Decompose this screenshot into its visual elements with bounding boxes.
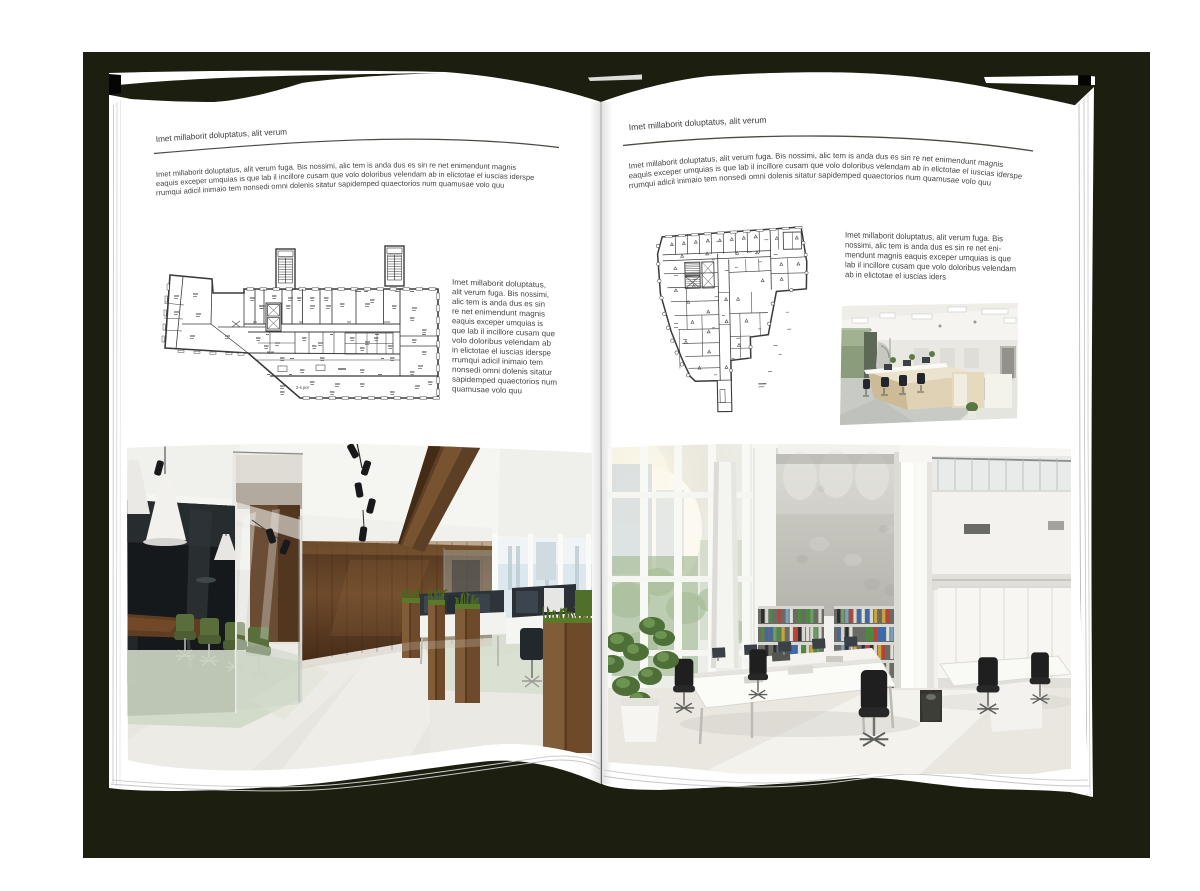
svg-text:2-s por: 2-s por [296, 385, 310, 390]
